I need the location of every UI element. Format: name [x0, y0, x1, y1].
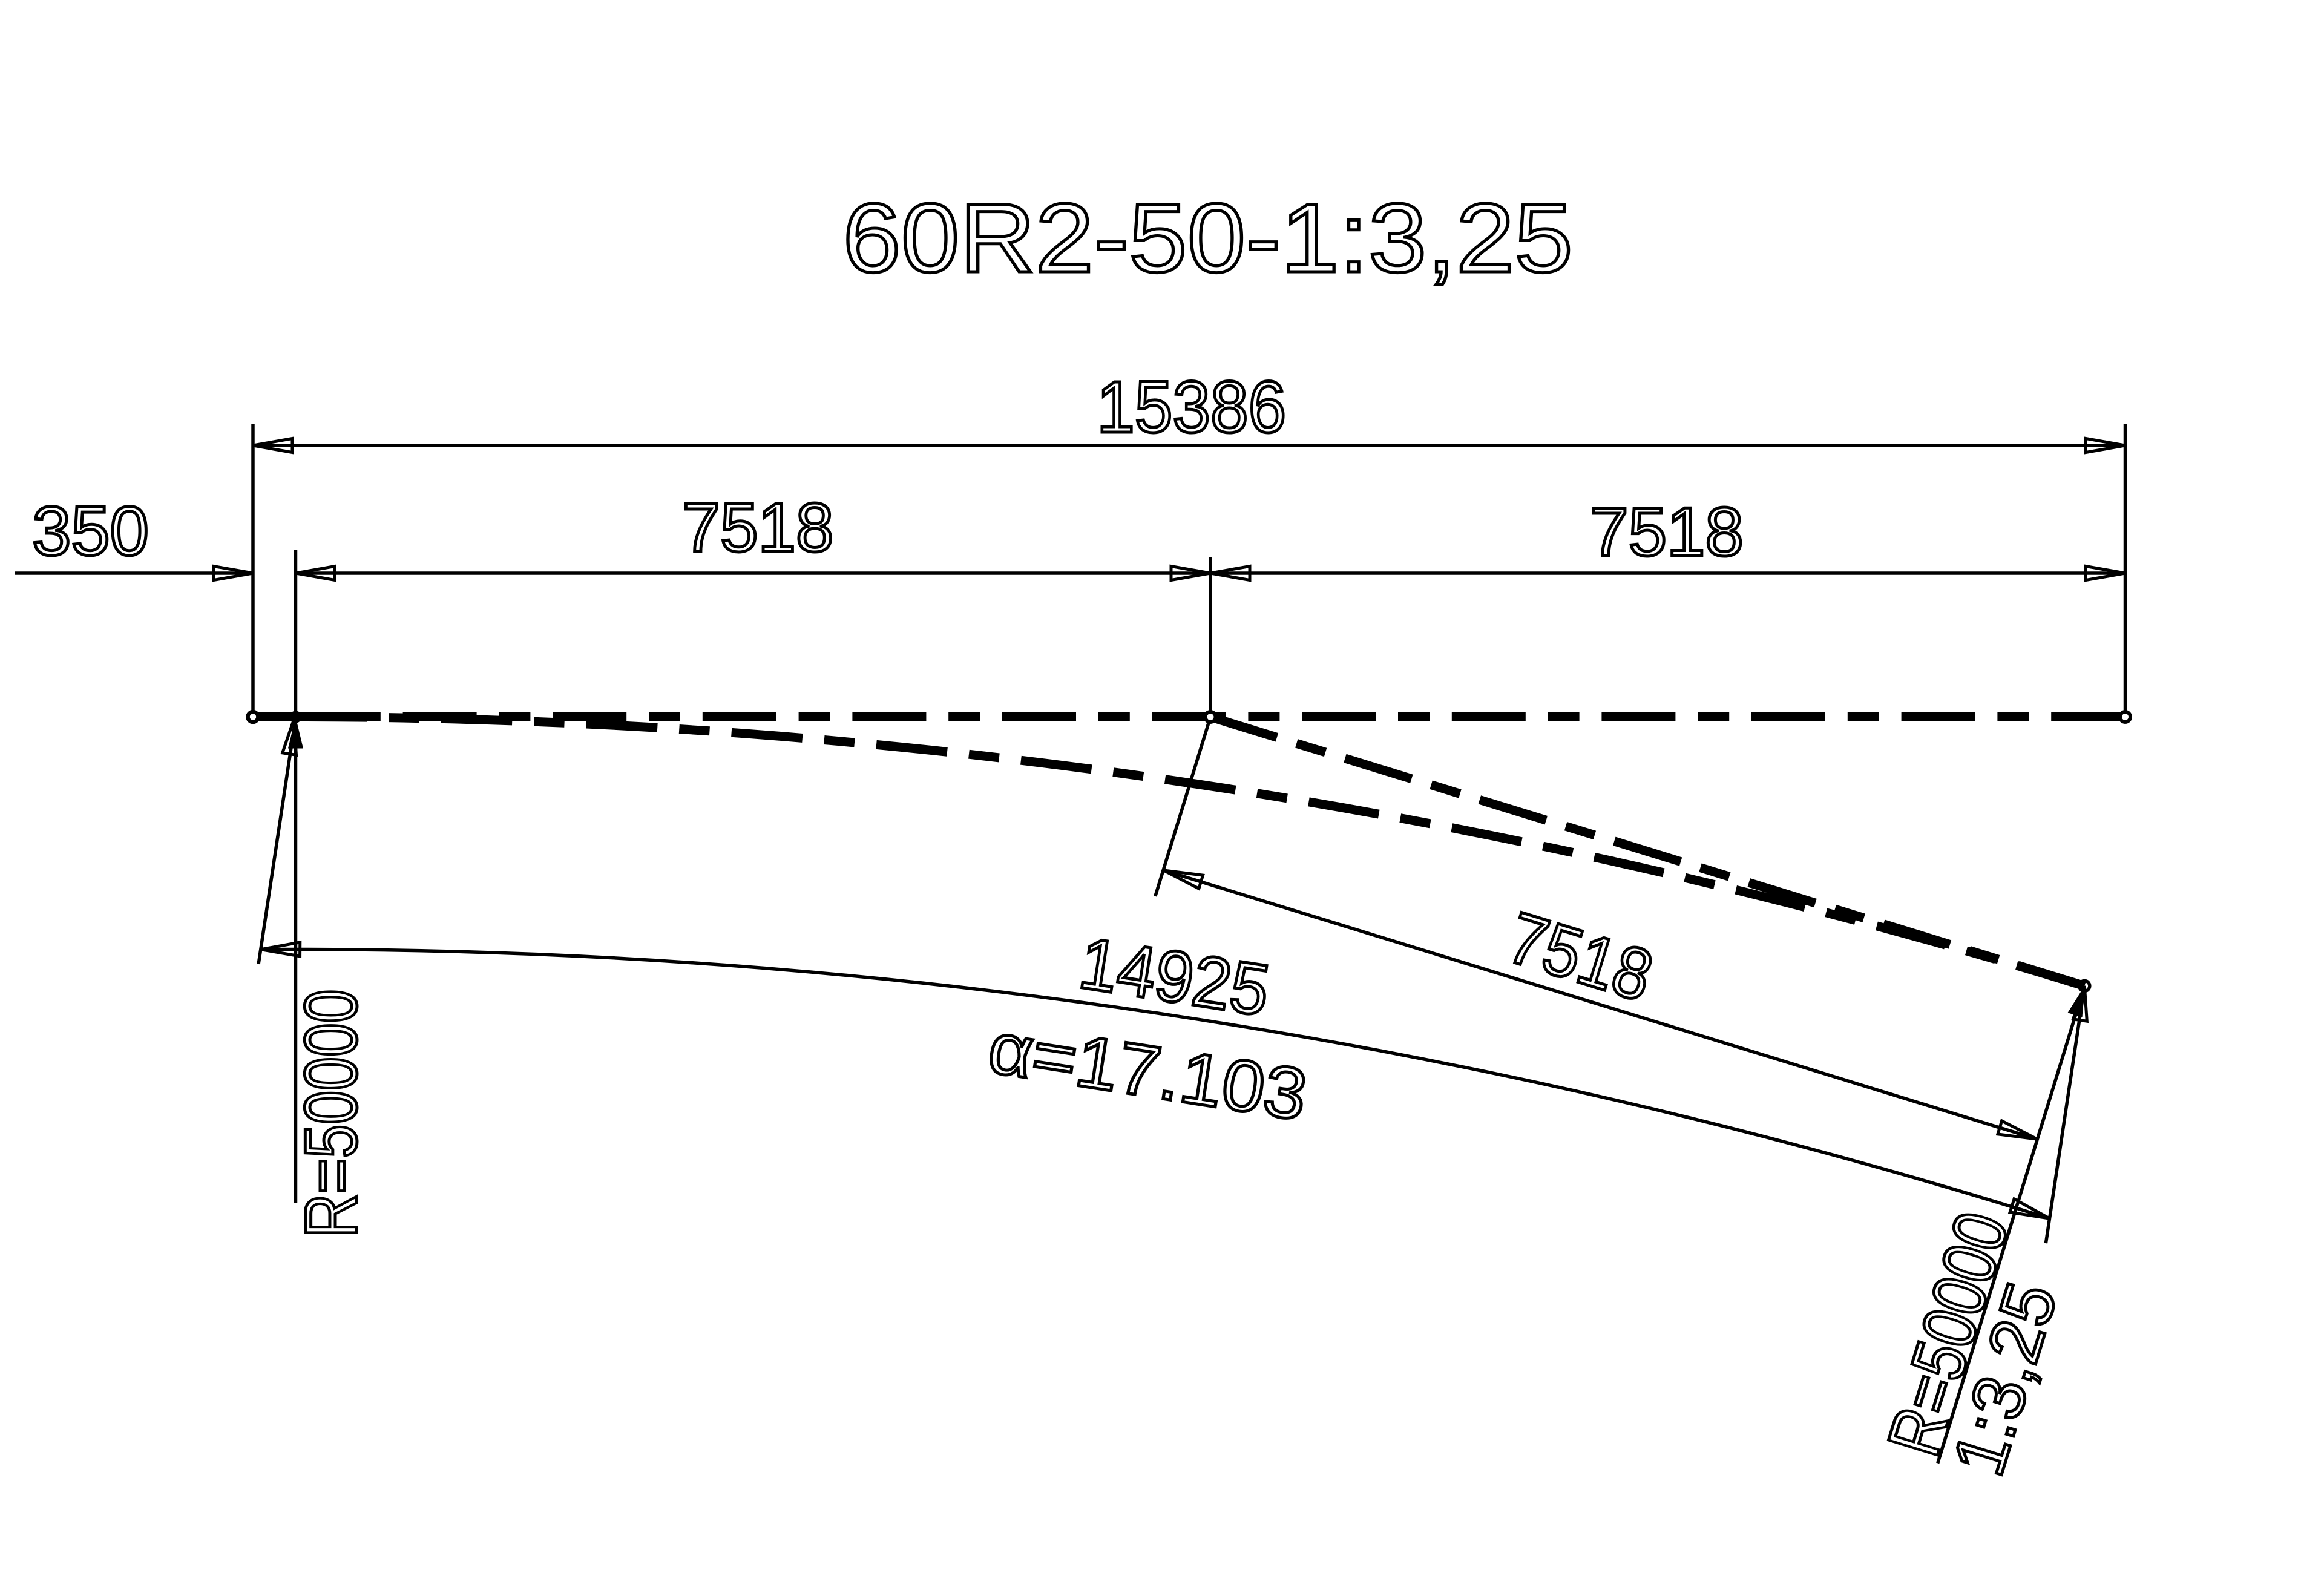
svg-text:7518: 7518: [1590, 494, 1744, 571]
svg-text:7518: 7518: [683, 489, 834, 566]
svg-text:60R2-50-1:3,25: 60R2-50-1:3,25: [842, 183, 1573, 292]
svg-text:R=50000: R=50000: [289, 989, 372, 1237]
svg-text:350: 350: [32, 493, 149, 570]
svg-text:15386: 15386: [1097, 366, 1286, 448]
